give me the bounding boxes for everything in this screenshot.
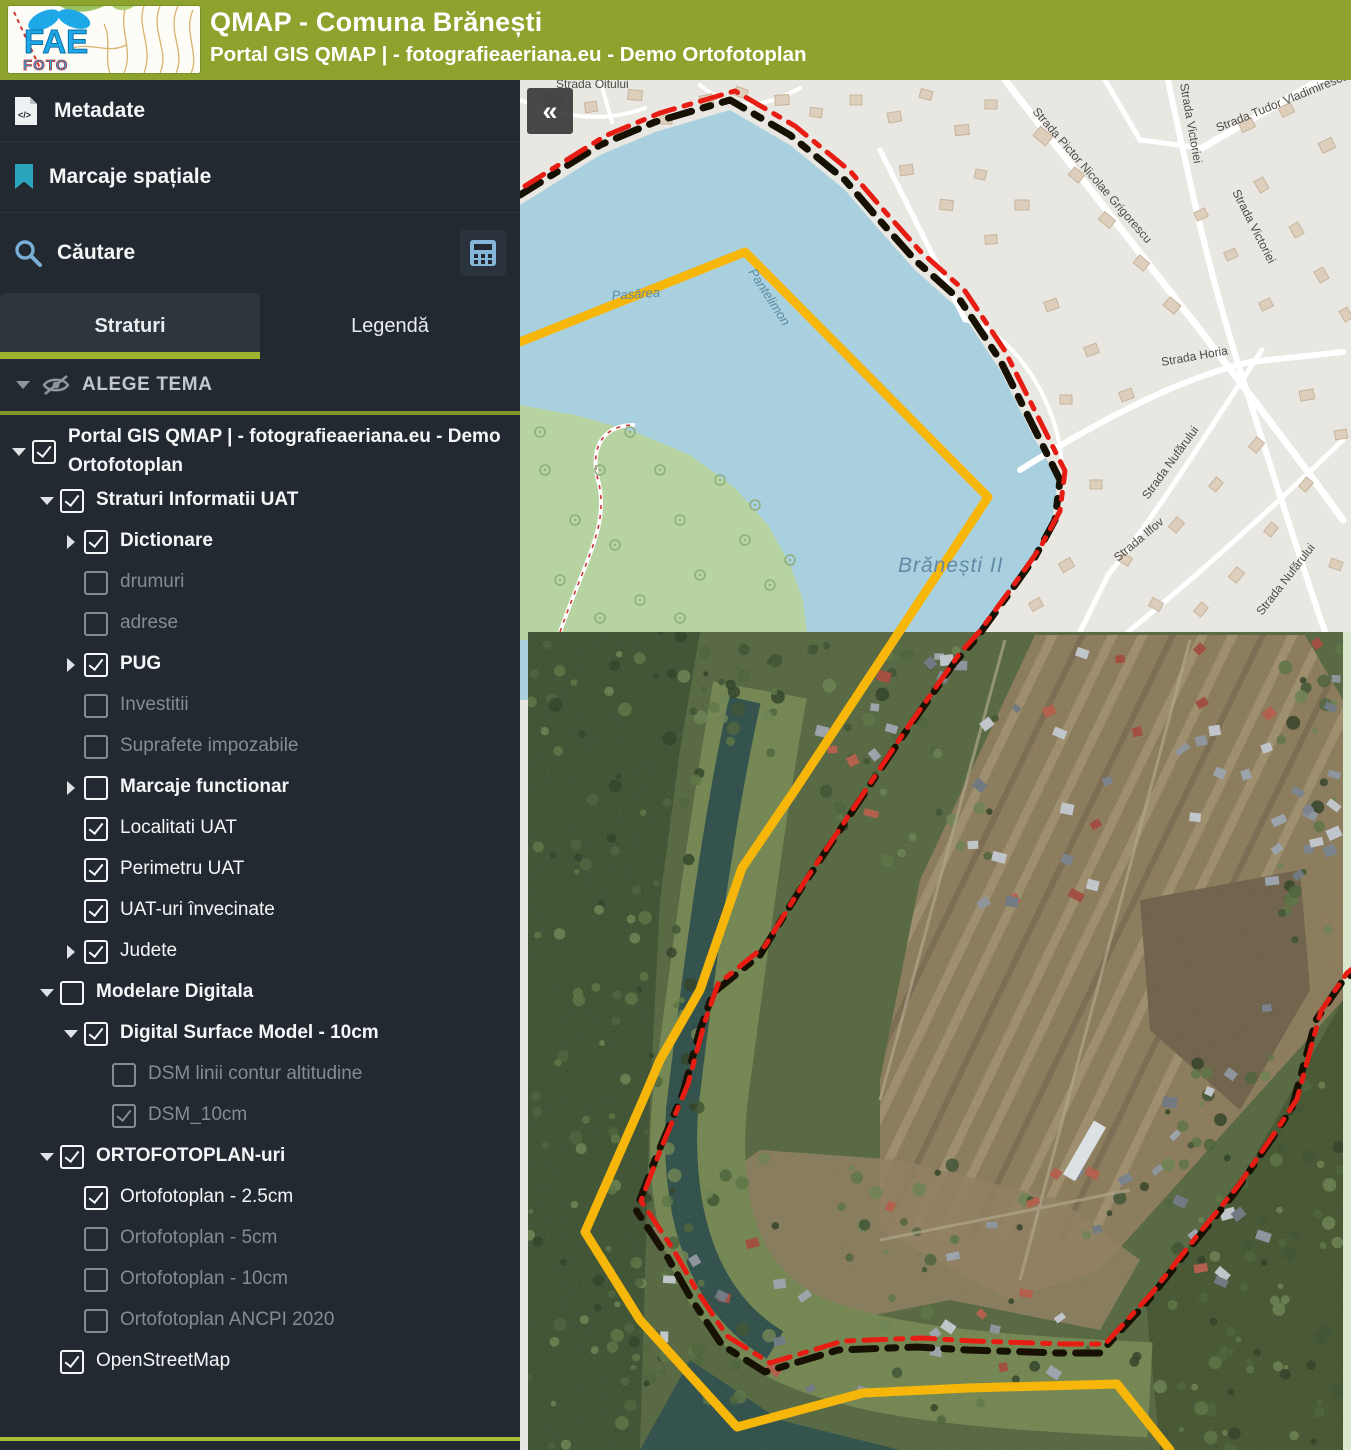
layer-label: Dictionare — [120, 527, 213, 556]
layer-checkbox[interactable] — [84, 776, 108, 800]
logo-text-foto: FOTO — [23, 57, 68, 73]
layer-checkbox[interactable] — [60, 1145, 84, 1169]
layer-checkbox[interactable] — [84, 940, 108, 964]
tree-item-dictionare[interactable]: Dictionare — [0, 521, 520, 562]
layer-checkbox[interactable] — [60, 981, 84, 1005]
eye-off-icon — [41, 373, 71, 397]
app-header: FAE FOTO QMAP - Comuna Brănești Portal G… — [0, 0, 1351, 80]
tree-item-straturi-informatii-uat[interactable]: Straturi Informatii UAT — [0, 480, 520, 521]
layer-checkbox[interactable] — [84, 1268, 108, 1292]
layer-tree: Portal GIS QMAP | - fotografieaeriana.eu… — [0, 415, 520, 1382]
bookmark-icon — [14, 164, 34, 190]
layer-label: adrese — [120, 609, 178, 638]
page-subtitle: Portal GIS QMAP | - fotografieaeriana.eu… — [210, 40, 807, 70]
tree-item-ortofotoplan-uri[interactable]: ORTOFOTOPLAN-uri — [0, 1136, 520, 1177]
tree-item-localitati-uat[interactable]: Localitati UAT — [0, 808, 520, 849]
tree-item-dsm-linii-contur-altitudine[interactable]: DSM linii contur altitudine — [0, 1054, 520, 1095]
app-logo: FAE FOTO — [8, 6, 200, 73]
qmap-app: FAE FOTO QMAP - Comuna Brănești Portal G… — [0, 0, 1351, 1450]
map-panel: Strada OituluiPasăreaPantelimonBrănești … — [520, 80, 1351, 1450]
code-file-icon: </> — [14, 96, 39, 126]
layer-checkbox[interactable] — [84, 1309, 108, 1333]
chevron-down-icon[interactable] — [34, 497, 60, 505]
chevron-right-icon[interactable] — [58, 535, 84, 549]
sidebar-item-label: Marcaje spațiale — [49, 165, 211, 189]
sidebar-item-label: Căutare — [57, 241, 135, 265]
tree-item-modelare-digitala[interactable]: Modelare Digitala — [0, 972, 520, 1013]
search-icon — [14, 239, 42, 267]
layer-label: Ortofotoplan ANCPI 2020 — [120, 1306, 334, 1335]
tree-item-dsm-10cm[interactable]: DSM_10cm — [0, 1095, 520, 1136]
calculator-icon — [468, 238, 498, 268]
tree-item-openstreetmap[interactable]: OpenStreetMap — [0, 1341, 520, 1382]
layer-checkbox[interactable] — [84, 612, 108, 636]
layer-checkbox[interactable] — [112, 1104, 136, 1128]
tree-item-perimetru-uat[interactable]: Perimetru UAT — [0, 849, 520, 890]
chevron-down-icon — [16, 381, 30, 389]
sidebar-item-metadate[interactable]: </> Metadate — [0, 80, 520, 142]
tab-straturi[interactable]: Straturi — [0, 293, 260, 359]
tree-item-drumuri[interactable]: drumuri — [0, 562, 520, 603]
tree-item-portal-gis-qmap-fotografieaeriana-eu-demo-ortofotoplan[interactable]: Portal GIS QMAP | - fotografieaeriana.eu… — [0, 423, 520, 480]
chevron-down-icon[interactable] — [58, 1030, 84, 1038]
layer-checkbox[interactable] — [84, 530, 108, 554]
layer-checkbox[interactable] — [84, 1186, 108, 1210]
layer-label: Portal GIS QMAP | - fotografieaeriana.eu… — [68, 423, 512, 480]
tree-item-pug[interactable]: PUG — [0, 644, 520, 685]
layer-label: Modelare Digitala — [96, 978, 253, 1007]
map-label: Brănești II — [898, 554, 1004, 577]
layer-label: Digital Surface Model - 10cm — [120, 1019, 379, 1048]
layer-label: Ortofotoplan - 5cm — [120, 1224, 277, 1253]
divider — [0, 1437, 520, 1441]
tree-item-investitii[interactable]: Investitii — [0, 685, 520, 726]
layer-checkbox[interactable] — [84, 694, 108, 718]
tree-item-marcaje-functionar[interactable]: Marcaje functionar — [0, 767, 520, 808]
layer-label: Straturi Informatii UAT — [96, 486, 298, 515]
chevron-right-icon[interactable] — [58, 658, 84, 672]
tab-legenda[interactable]: Legendă — [260, 293, 520, 359]
tree-item-suprafete-impozabile[interactable]: Suprafete impozabile — [0, 726, 520, 767]
layer-checkbox[interactable] — [60, 489, 84, 513]
tree-item-digital-surface-model-10cm[interactable]: Digital Surface Model - 10cm — [0, 1013, 520, 1054]
layer-checkbox[interactable] — [84, 1227, 108, 1251]
layer-label: UAT-uri învecinate — [120, 896, 275, 925]
page-title: QMAP - Comuna Brănești — [210, 4, 807, 40]
theme-selector[interactable]: ALEGE TEMA — [0, 359, 520, 411]
layer-label: Investitii — [120, 691, 189, 720]
tree-item-ortofotoplan-ancpi-2020[interactable]: Ortofotoplan ANCPI 2020 — [0, 1300, 520, 1341]
tree-item-ortofotoplan-5cm[interactable]: Ortofotoplan - 5cm — [0, 1218, 520, 1259]
sidebar-item-label: Metadate — [54, 99, 145, 123]
tree-item-judete[interactable]: Judete — [0, 931, 520, 972]
layer-checkbox[interactable] — [84, 817, 108, 841]
chevron-down-icon[interactable] — [34, 1153, 60, 1161]
layer-label: Ortofotoplan - 2.5cm — [120, 1183, 293, 1212]
osm-edge-strip — [1343, 632, 1351, 1450]
layer-label: Ortofotoplan - 10cm — [120, 1265, 288, 1294]
layer-checkbox[interactable] — [112, 1063, 136, 1087]
sidebar-collapse-button[interactable]: « — [527, 88, 573, 134]
layer-label: Localitati UAT — [120, 814, 237, 843]
layer-checkbox[interactable] — [84, 899, 108, 923]
layer-label: drumuri — [120, 568, 184, 597]
layer-checkbox[interactable] — [84, 571, 108, 595]
layer-label: DSM_10cm — [148, 1101, 247, 1130]
layer-label: PUG — [120, 650, 161, 679]
tree-item-adrese[interactable]: adrese — [0, 603, 520, 644]
tree-item-ortofotoplan-10cm[interactable]: Ortofotoplan - 10cm — [0, 1259, 520, 1300]
layer-checkbox[interactable] — [84, 1022, 108, 1046]
sidebar-item-cautare[interactable]: Căutare — [0, 213, 520, 293]
svg-text:</>: </> — [18, 110, 31, 120]
chevron-right-icon[interactable] — [58, 781, 84, 795]
layer-checkbox[interactable] — [84, 653, 108, 677]
logo-image: FAE FOTO — [8, 6, 200, 73]
theme-selector-label: ALEGE TEMA — [82, 374, 213, 396]
chevron-down-icon[interactable] — [34, 989, 60, 997]
layer-checkbox[interactable] — [84, 858, 108, 882]
layer-label: Marcaje functionar — [120, 773, 289, 802]
sidebar-tabs: Straturi Legendă — [0, 293, 520, 359]
layer-label: OpenStreetMap — [96, 1347, 230, 1376]
layer-checkbox[interactable] — [60, 1350, 84, 1374]
sidebar: </> Metadate Marcaje spațiale Căutare — [0, 80, 520, 1450]
layer-label: ORTOFOTOPLAN-uri — [96, 1142, 285, 1171]
layer-label: Judete — [120, 937, 177, 966]
map-canvas[interactable]: Strada OituluiPasăreaPantelimonBrănești … — [520, 80, 1351, 1450]
chevron-right-icon[interactable] — [58, 945, 84, 959]
layer-checkbox[interactable] — [32, 440, 56, 464]
layer-label: Suprafete impozabile — [120, 732, 299, 761]
sidebar-item-marcaje-spatiale[interactable]: Marcaje spațiale — [0, 142, 520, 213]
attribute-table-button[interactable] — [460, 230, 506, 276]
layer-checkbox[interactable] — [84, 735, 108, 759]
layer-label: DSM linii contur altitudine — [148, 1060, 362, 1089]
tree-item-uat-uri-nvecinate[interactable]: UAT-uri învecinate — [0, 890, 520, 931]
layer-label: Perimetru UAT — [120, 855, 244, 884]
logo-text-fae: FAE — [24, 23, 88, 60]
tree-item-ortofotoplan-2-5cm[interactable]: Ortofotoplan - 2.5cm — [0, 1177, 520, 1218]
chevron-down-icon[interactable] — [6, 448, 32, 456]
